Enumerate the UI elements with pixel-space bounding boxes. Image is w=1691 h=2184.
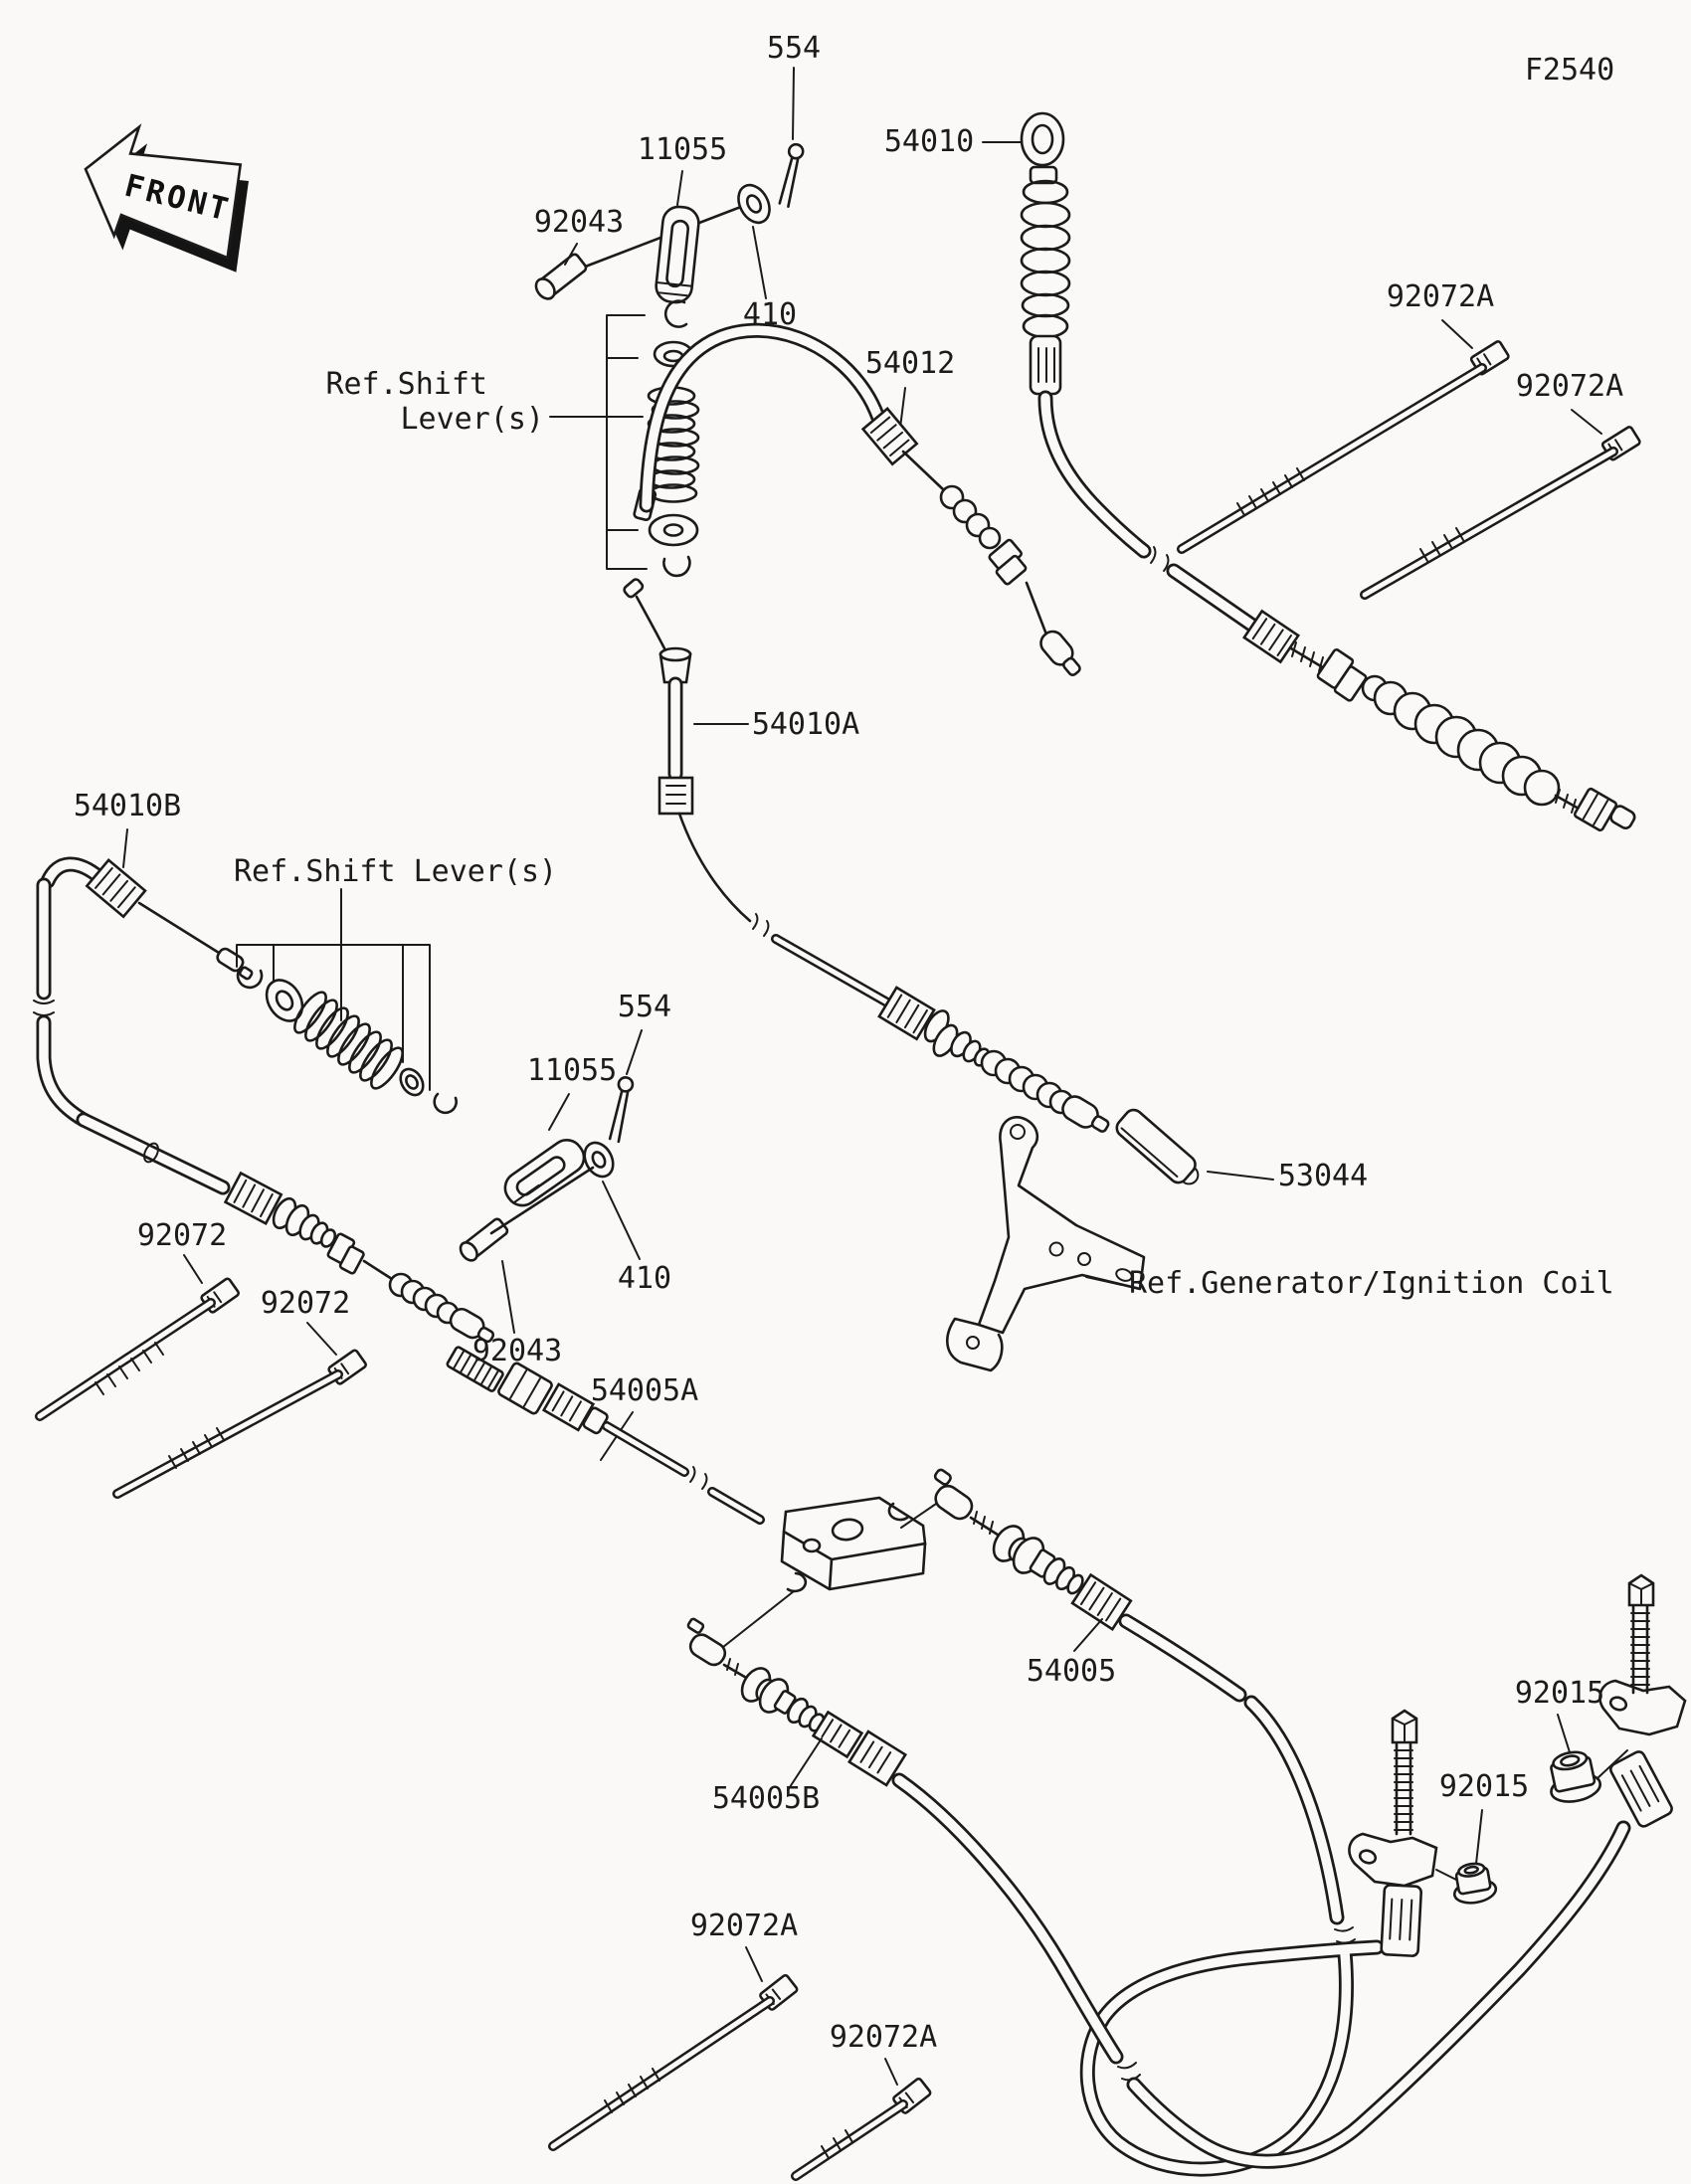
part-label-410-2: 410 — [618, 1261, 671, 1296]
cable-54010b — [34, 829, 497, 1348]
shift-lever-stack-1 — [550, 301, 698, 576]
nut-92015-2 — [1449, 1861, 1497, 1907]
equalizer-joint — [718, 1498, 939, 1651]
front-arrow-icon: FRONT — [69, 117, 265, 278]
ref-generator-ignition-coil: Ref.Generator/Ignition Coil — [1129, 1266, 1614, 1301]
part-label-54010b: 54010B — [74, 789, 181, 823]
parts-diagram-page: FRONT — [0, 0, 1691, 2184]
part-label-11055-2: 11055 — [527, 1053, 617, 1088]
cable-54010a — [623, 578, 1113, 1138]
spring-2 — [289, 988, 408, 1093]
generator-bracket — [947, 1117, 1144, 1370]
cable-tie-92072-1 — [40, 1255, 240, 1416]
part-label-54005b: 54005B — [712, 1781, 820, 1816]
part-label-410-top: 410 — [743, 297, 797, 332]
clevis-assembly-top — [532, 68, 804, 304]
ref-shift-lever-1-line1: Ref.Shift — [325, 367, 487, 402]
part-label-92072a-b1: 92072A — [690, 1909, 798, 1943]
diagram-code-label: F2540 — [1525, 53, 1614, 88]
part-label-54010a: 54010A — [752, 707, 859, 742]
part-label-92072a-t1: 92072A — [1387, 279, 1494, 314]
cable-tie-92072a-t2 — [1365, 410, 1641, 595]
part-label-92072-2: 92072 — [261, 1286, 350, 1321]
part-label-92015-1: 92015 — [1515, 1676, 1604, 1711]
damper-53044 — [1113, 1106, 1273, 1191]
part-label-54005: 54005 — [1027, 1654, 1116, 1689]
ref-shift-lever-2: Ref.Shift Lever(s) — [234, 854, 557, 889]
nut-92015-1 — [1544, 1747, 1602, 1805]
part-label-92015-2: 92015 — [1439, 1769, 1529, 1804]
part-label-54010: 54010 — [884, 124, 974, 159]
part-label-554-2: 554 — [618, 990, 671, 1024]
leader-lines — [788, 1619, 1102, 1790]
cable-tie-92072a-t1 — [1182, 320, 1510, 549]
part-label-54005a: 54005A — [591, 1373, 698, 1408]
part-label-53044: 53044 — [1278, 1159, 1368, 1193]
cable-54005 — [922, 1468, 1460, 2169]
cable-tie-92072-2 — [117, 1323, 367, 1494]
cotter-pin-top — [779, 143, 804, 208]
shift-lever-stack-2 — [237, 889, 457, 1113]
cable-54012 — [634, 330, 1086, 679]
part-label-92072a-b2: 92072A — [830, 2020, 937, 2055]
part-label-92043-2: 92043 — [472, 1334, 562, 1368]
rod-54005a — [447, 1347, 760, 1520]
part-label-554-top: 554 — [767, 31, 821, 66]
ref-shift-lever-1-line2: Lever(s) — [401, 402, 545, 437]
cable-tie-92072a-b1 — [553, 1947, 798, 2146]
part-label-92043-top: 92043 — [534, 205, 624, 240]
parts-diagram-canvas: FRONT — [0, 0, 1691, 2184]
part-label-54012: 54012 — [865, 346, 955, 381]
part-label-92072a-t2: 92072A — [1516, 369, 1623, 404]
part-label-92072-1: 92072 — [137, 1218, 227, 1253]
cable-tie-92072a-b2 — [796, 2059, 931, 2176]
part-label-11055-top: 11055 — [638, 132, 727, 167]
